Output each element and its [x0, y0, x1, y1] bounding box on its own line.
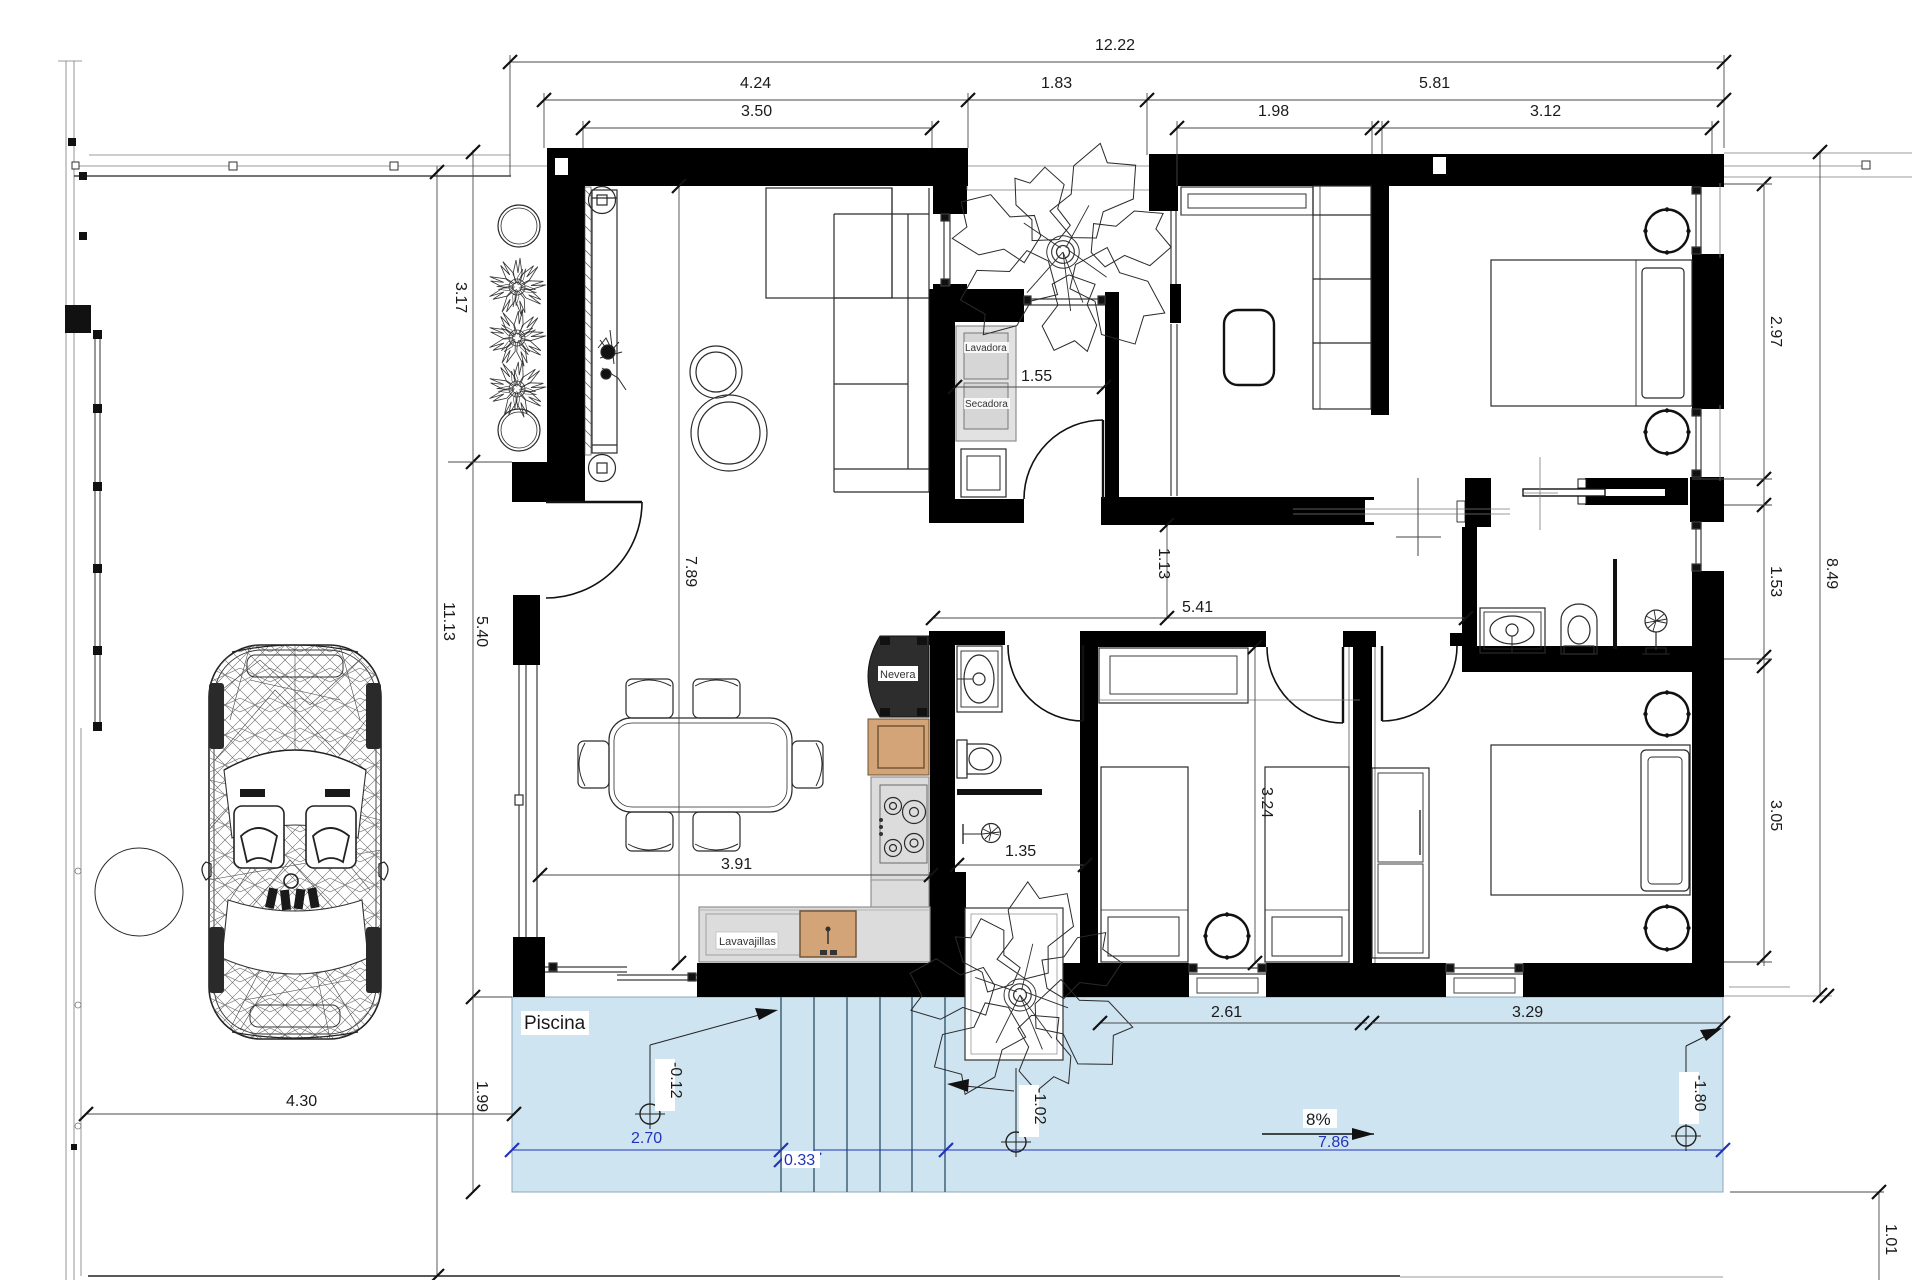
svg-text:1.53: 1.53: [1767, 566, 1784, 597]
svg-text:3.24: 3.24: [1258, 787, 1275, 818]
svg-text:2.61: 2.61: [1211, 1004, 1242, 1021]
svg-text:5.41: 5.41: [1182, 599, 1213, 616]
svg-text:3.05: 3.05: [1767, 800, 1784, 831]
svg-text:Nevera: Nevera: [880, 669, 916, 681]
svg-text:11.13: 11.13: [440, 602, 457, 641]
svg-text:1.83: 1.83: [1041, 75, 1072, 92]
svg-text:0.33: 0.33: [784, 1152, 815, 1169]
svg-text:Secadora: Secadora: [965, 399, 1008, 410]
svg-text:12.22: 12.22: [1095, 37, 1135, 54]
svg-text:8%: 8%: [1306, 1110, 1331, 1129]
svg-text:Piscina: Piscina: [524, 1013, 586, 1034]
svg-text:1.98: 1.98: [1258, 103, 1289, 120]
svg-text:3.12: 3.12: [1530, 103, 1561, 120]
svg-text:4.24: 4.24: [740, 75, 771, 92]
svg-text:3.17: 3.17: [452, 282, 469, 313]
svg-text:1.99: 1.99: [473, 1081, 490, 1112]
svg-text:2.97: 2.97: [1767, 316, 1784, 347]
svg-text:3.50: 3.50: [741, 103, 772, 120]
svg-text:-1.80: -1.80: [1691, 1075, 1708, 1112]
svg-text:5.40: 5.40: [473, 616, 490, 647]
svg-text:3.29: 3.29: [1512, 1004, 1543, 1021]
svg-text:1.01: 1.01: [1882, 1224, 1899, 1255]
svg-text:5.81: 5.81: [1419, 75, 1450, 92]
svg-text:4.30: 4.30: [286, 1093, 317, 1110]
svg-text:-1.02: -1.02: [1031, 1088, 1048, 1125]
svg-text:Lavadora: Lavadora: [965, 343, 1007, 354]
svg-text:8.49: 8.49: [1823, 558, 1840, 589]
svg-text:-0.12: -0.12: [667, 1062, 684, 1099]
svg-text:1.55: 1.55: [1021, 368, 1052, 385]
svg-text:2.70: 2.70: [631, 1130, 662, 1147]
svg-text:7.86: 7.86: [1318, 1134, 1349, 1151]
svg-text:1.13: 1.13: [1155, 548, 1172, 579]
svg-text:3.91: 3.91: [721, 856, 752, 873]
svg-text:7.89: 7.89: [682, 556, 699, 587]
svg-text:Lavavajillas: Lavavajillas: [719, 936, 776, 948]
svg-text:1.35: 1.35: [1005, 843, 1036, 860]
